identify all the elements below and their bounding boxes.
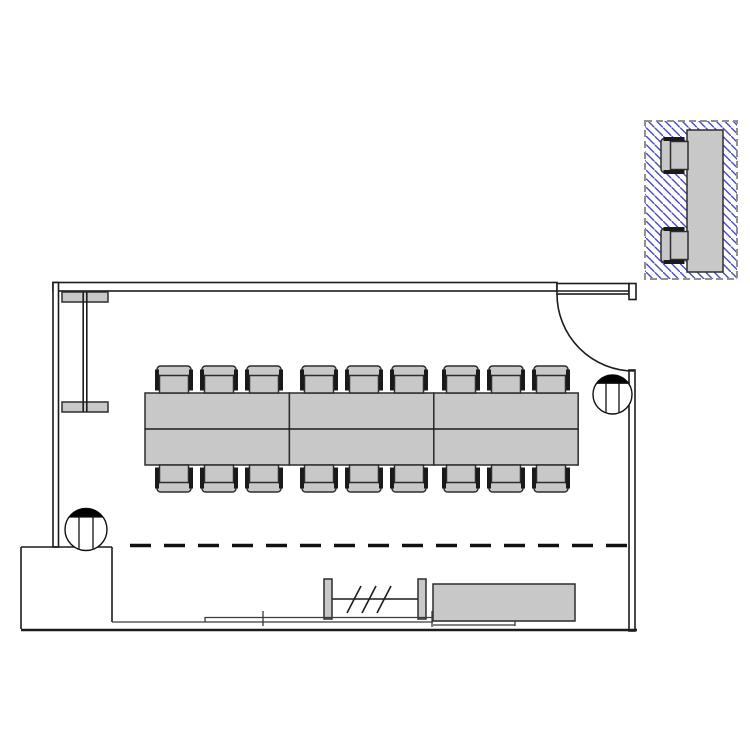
chair (345, 465, 383, 492)
wall-unit-left (62, 292, 108, 412)
chair (245, 465, 283, 492)
chair (300, 366, 338, 393)
chair (200, 366, 238, 393)
partition-post (418, 579, 426, 619)
chair (345, 366, 383, 393)
chair (155, 465, 193, 492)
inset-table (687, 130, 723, 272)
door-swing-arc (557, 294, 634, 371)
chair (661, 137, 688, 174)
chair (155, 366, 193, 393)
door-leaf (557, 284, 629, 295)
wall-right (629, 370, 635, 631)
detail-inset (645, 121, 737, 279)
chair (532, 366, 570, 393)
sideboard (433, 584, 575, 621)
partition-post (324, 579, 332, 619)
floorplan-canvas (0, 0, 750, 750)
wall-top (53, 283, 557, 292)
chair (532, 465, 570, 492)
chair (390, 465, 428, 492)
wall-left (53, 283, 59, 548)
chair (442, 366, 480, 393)
chair (390, 366, 428, 393)
chair (442, 465, 480, 492)
conference-tables (145, 393, 578, 465)
chair (200, 465, 238, 492)
door-jamb (629, 284, 636, 300)
chair (661, 227, 688, 264)
chair (245, 366, 283, 393)
chair (487, 366, 525, 393)
floorplan-drawing (0, 0, 750, 750)
chair (300, 465, 338, 492)
door (557, 284, 636, 372)
partition-railing (324, 579, 426, 619)
column-symbol (593, 375, 632, 414)
column-symbol (65, 508, 107, 550)
chair (487, 465, 525, 492)
